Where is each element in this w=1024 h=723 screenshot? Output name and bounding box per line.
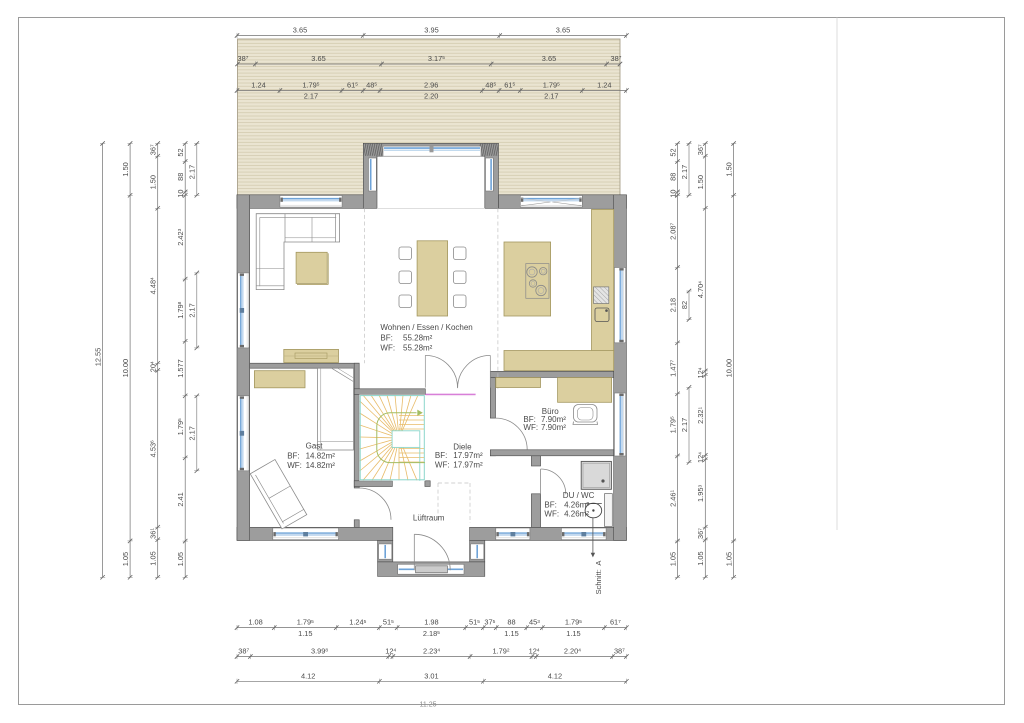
- svg-text:2.18: 2.18: [668, 298, 677, 312]
- svg-text:52: 52: [668, 148, 677, 156]
- svg-text:88: 88: [668, 173, 677, 181]
- svg-text:WF:: WF:: [287, 461, 302, 470]
- svg-text:10: 10: [176, 189, 185, 197]
- svg-text:1.05: 1.05: [724, 552, 733, 566]
- svg-text:1.577: 1.577: [176, 359, 185, 378]
- svg-text:4.12: 4.12: [548, 671, 562, 680]
- svg-text:2.17: 2.17: [188, 165, 197, 179]
- svg-text:2.20: 2.20: [424, 92, 438, 101]
- svg-text:1.15: 1.15: [298, 629, 312, 638]
- svg-text:3.65: 3.65: [556, 26, 570, 35]
- svg-text:3.65: 3.65: [293, 26, 307, 35]
- svg-text:88: 88: [507, 618, 515, 627]
- svg-text:BF:: BF:: [544, 500, 556, 509]
- svg-text:1.05: 1.05: [149, 551, 158, 565]
- svg-text:WF:: WF:: [435, 460, 450, 469]
- svg-text:2.17: 2.17: [680, 165, 689, 179]
- svg-text:WF:: WF:: [544, 510, 559, 519]
- svg-text:3.65: 3.65: [542, 54, 556, 63]
- svg-text:1.05: 1.05: [176, 552, 185, 566]
- svg-text:Wohnen / Essen / Kochen: Wohnen / Essen / Kochen: [380, 323, 472, 332]
- svg-text:55.28m²: 55.28m²: [403, 333, 433, 342]
- svg-text:52: 52: [176, 148, 185, 156]
- svg-text:4.26m²: 4.26m²: [564, 510, 589, 519]
- svg-text:WF:: WF:: [523, 423, 538, 432]
- svg-text:2.17: 2.17: [304, 92, 318, 101]
- svg-text:BF:: BF:: [287, 451, 299, 460]
- svg-text:1.05: 1.05: [668, 552, 677, 566]
- svg-text:Gast: Gast: [306, 441, 324, 450]
- svg-text:1.50: 1.50: [696, 175, 705, 189]
- svg-text:1.24: 1.24: [251, 81, 265, 90]
- svg-text:2.41: 2.41: [176, 492, 185, 506]
- svg-text:4.26m²: 4.26m²: [564, 500, 589, 509]
- svg-text:1.98: 1.98: [424, 618, 438, 627]
- svg-text:1.05: 1.05: [696, 551, 705, 565]
- svg-text:1.15: 1.15: [504, 629, 518, 638]
- svg-text:WF:: WF:: [380, 343, 395, 352]
- svg-text:Schnitt:: Schnitt:: [594, 569, 603, 594]
- svg-text:BF:: BF:: [435, 451, 447, 460]
- svg-text:55.28m²: 55.28m²: [403, 343, 433, 352]
- svg-text:14.82m²: 14.82m²: [306, 451, 336, 460]
- svg-text:3.95: 3.95: [424, 26, 438, 35]
- svg-text:3.65: 3.65: [311, 54, 325, 63]
- svg-text:BF:: BF:: [380, 333, 392, 342]
- svg-text:12.55: 12.55: [93, 348, 102, 367]
- svg-text:4.12: 4.12: [301, 671, 315, 680]
- svg-text:2.96: 2.96: [424, 81, 438, 90]
- svg-text:1.05: 1.05: [121, 552, 130, 566]
- svg-text:2.17: 2.17: [188, 426, 197, 440]
- svg-text:88: 88: [176, 173, 185, 181]
- svg-text:1.15: 1.15: [566, 629, 580, 638]
- svg-text:1.50: 1.50: [724, 162, 733, 176]
- svg-text:1.08: 1.08: [248, 618, 262, 627]
- svg-text:2.17: 2.17: [680, 418, 689, 432]
- svg-text:Lüftraum: Lüftraum: [413, 513, 445, 522]
- svg-text:17.97m²: 17.97m²: [453, 451, 483, 460]
- svg-text:1.24: 1.24: [597, 81, 611, 90]
- svg-text:17.97m²: 17.97m²: [453, 460, 483, 469]
- svg-text:10: 10: [668, 189, 677, 197]
- svg-text:2.17: 2.17: [188, 303, 197, 317]
- svg-text:1.50: 1.50: [121, 162, 130, 176]
- svg-text:10.00: 10.00: [724, 359, 733, 378]
- svg-text:2.17: 2.17: [544, 92, 558, 101]
- svg-text:DU / WC: DU / WC: [563, 491, 595, 500]
- svg-text:14.82m²: 14.82m²: [306, 461, 336, 470]
- svg-text:3.01: 3.01: [424, 671, 438, 680]
- svg-text:11.25: 11.25: [420, 702, 437, 709]
- svg-text:7.90m²: 7.90m²: [541, 423, 566, 432]
- svg-text:10.00: 10.00: [121, 359, 130, 378]
- svg-text:82: 82: [680, 301, 689, 309]
- svg-text:1.50: 1.50: [149, 175, 158, 189]
